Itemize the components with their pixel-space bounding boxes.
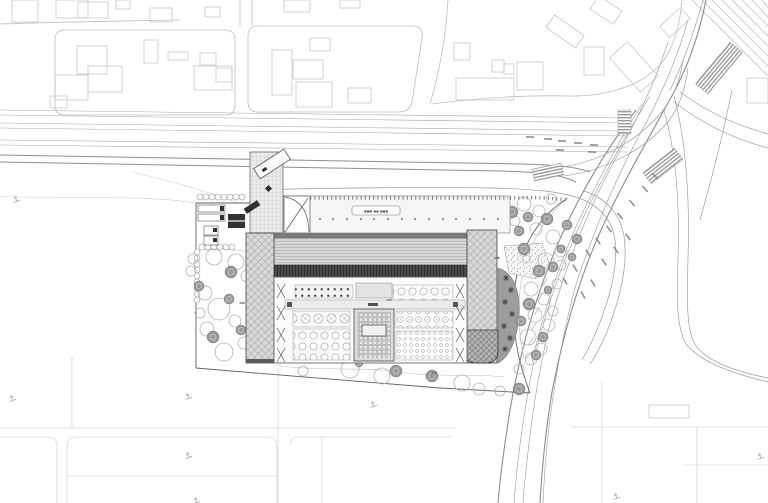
court-zone-kiosk (356, 283, 392, 298)
court-zone-circles-ne (393, 285, 453, 302)
service-yard-gray (228, 220, 245, 222)
hedge-top (197, 194, 245, 200)
hall-roof (274, 238, 467, 265)
court-zone-dots-se (396, 331, 453, 360)
wing-east-cap (464, 330, 498, 363)
court-zone-circles-sw (293, 329, 350, 360)
shoulder-ticks (525, 264, 551, 360)
highway-edges (0, 155, 590, 182)
site-plan-page: ▪▪▪ ▪▪ ▪▪▪ (0, 0, 768, 503)
court-zone-xtrees-e (396, 311, 453, 328)
court-zone-xtrees (293, 311, 350, 327)
hall-top-edge (274, 233, 467, 238)
greenhouse-box (362, 325, 386, 336)
highway-lines (0, 110, 628, 152)
court-zone-dotgrid (295, 285, 353, 298)
wing-west-base (246, 359, 274, 363)
hedge-left (194, 249, 200, 303)
planted-mound (498, 268, 519, 363)
sign-text: ▪▪▪ ▪▪ ▪▪▪ (364, 209, 389, 214)
context-blocks (0, 0, 682, 115)
road-branch (664, 0, 768, 382)
hall-dark-band (274, 265, 467, 277)
crosswalks (532, 42, 742, 184)
parcel-lines (0, 356, 768, 503)
wing-west (246, 233, 274, 363)
esplanade-signboard: ▪▪▪ ▪▪ ▪▪▪ (352, 206, 400, 215)
site-plan-drawing: ▪▪▪ ▪▪ ▪▪▪ (0, 0, 768, 503)
